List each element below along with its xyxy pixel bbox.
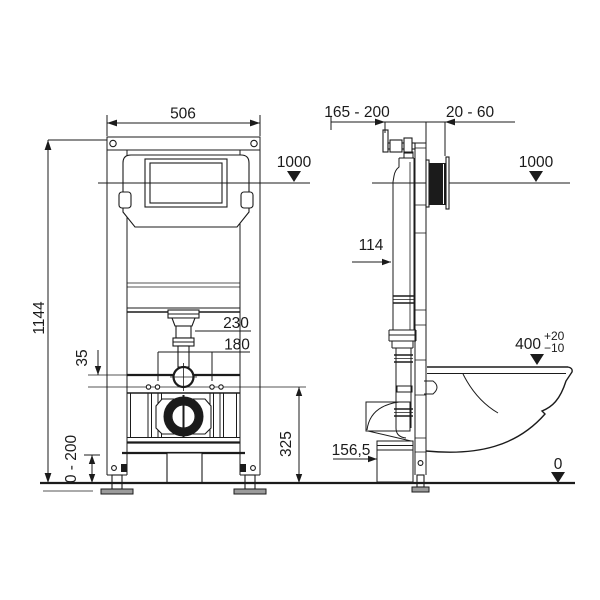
dim-wall-finish: 20 - 60 <box>446 104 495 121</box>
level-triangle-icon <box>551 472 565 483</box>
dim-outlet-height: 325 <box>278 431 295 457</box>
front-view: 506 1144 1000 230 180 35 <box>31 106 312 495</box>
arrow-icon <box>89 474 95 483</box>
foot-plate-right <box>234 489 266 494</box>
drain-elbow-side <box>366 402 413 482</box>
dim-frame-width: 506 <box>170 106 196 123</box>
dim-actuation-level-front: 1000 <box>277 154 312 171</box>
arrow-icon <box>296 474 302 483</box>
dim-cistern-depth: 114 <box>359 237 384 254</box>
foot-plate-left <box>101 489 133 494</box>
dim-foot-adjustment: 0 - 200 <box>63 434 80 483</box>
frame-hole-right-icon <box>251 140 257 146</box>
dim-bowl-tol-lower: −10 <box>544 341 565 355</box>
cistern-side <box>389 152 416 348</box>
arrow-icon <box>89 455 95 464</box>
access-box <box>167 453 202 483</box>
level-triangle-icon <box>529 171 543 182</box>
level-triangle-icon <box>530 354 544 365</box>
leg-clip-right-icon <box>240 464 246 472</box>
cistern-lug-left <box>119 192 131 208</box>
foot-plate-side <box>412 487 429 492</box>
front-middle-rails <box>88 375 306 393</box>
drain-section-front <box>122 393 245 483</box>
dim-bowl-height: 400 <box>515 336 541 353</box>
dim-actuation-level-side: 1000 <box>519 154 554 171</box>
arrow-icon <box>45 140 52 150</box>
dim-fixing-spacing: 180 <box>224 337 250 354</box>
dim-rail-offset: 35 <box>74 349 91 366</box>
dim-floor-level: 0 <box>554 456 563 473</box>
arrow-icon <box>107 120 117 127</box>
dim-flush-pipe-offset: 230 <box>223 315 249 332</box>
wall-sleeve <box>426 157 449 209</box>
dim-drain-offset: 156,5 <box>332 442 371 459</box>
arrow-icon <box>95 366 101 375</box>
arrow-icon <box>45 473 52 483</box>
leg-clip-left-icon <box>121 464 127 472</box>
cistern-lug-right <box>241 192 253 208</box>
dim-mounting-depth: 165 - 200 <box>324 104 390 121</box>
frame-hole-left-icon <box>110 140 116 146</box>
dim-frame-height: 1144 <box>31 301 48 335</box>
level-triangle-icon <box>287 171 301 182</box>
side-view: 165 - 200 20 - 60 1000 114 400 +20 −10 1… <box>324 104 572 492</box>
flush-pipe-front <box>168 310 199 391</box>
cistern-front <box>119 155 253 227</box>
technical-drawing-wc-frame: 506 1144 1000 230 180 35 <box>0 0 600 600</box>
drawing-canvas: 506 1144 1000 230 180 35 <box>0 0 600 600</box>
wall-bracket-side <box>383 130 415 153</box>
toilet-bowl-side <box>424 367 572 452</box>
side-dimensions: 165 - 200 20 - 60 1000 114 400 +20 −10 1… <box>324 104 565 483</box>
arrow-icon <box>382 259 391 265</box>
arrow-icon <box>250 120 260 127</box>
arrow-icon <box>296 387 302 396</box>
